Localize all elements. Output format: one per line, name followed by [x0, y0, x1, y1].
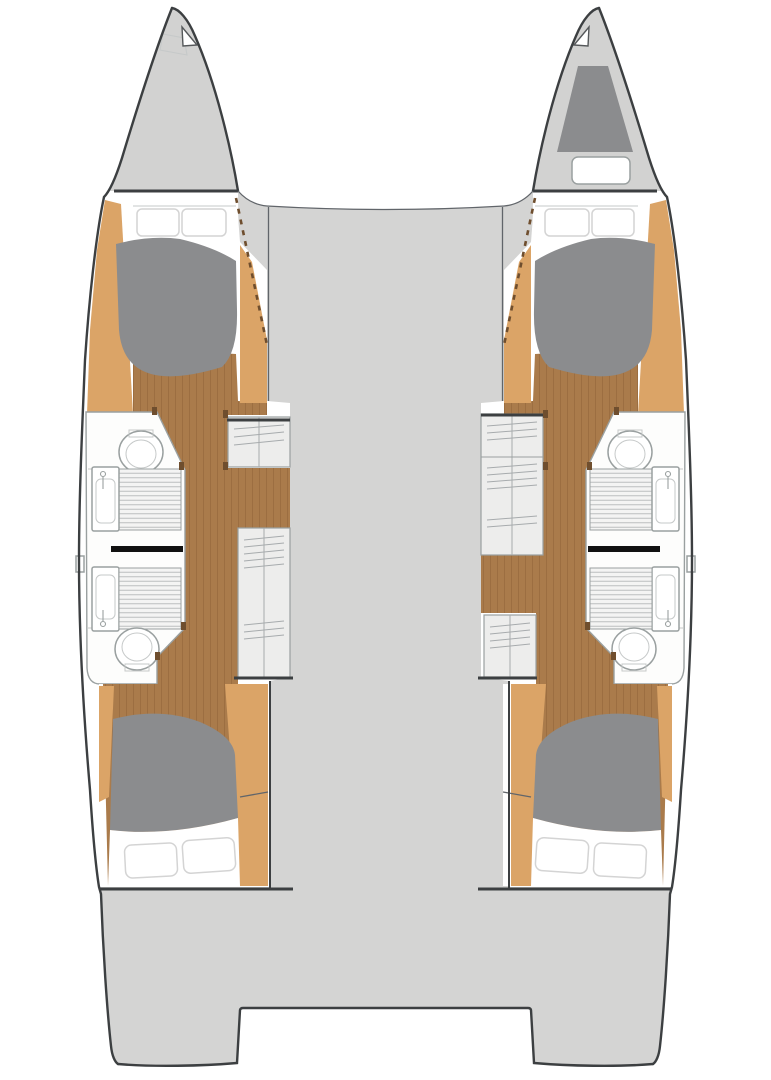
door-jamb — [179, 462, 184, 470]
starboard-bathroom-sliding-door — [588, 546, 660, 552]
port-forward-berth — [116, 238, 237, 377]
pillow — [535, 837, 589, 874]
door-jamb — [543, 410, 548, 418]
starboard-hull — [478, 192, 695, 889]
door-jamb — [223, 462, 228, 470]
pillow — [182, 837, 236, 874]
door-jamb — [152, 407, 157, 415]
door-jamb — [543, 462, 548, 470]
shower-grate — [590, 469, 652, 530]
starboard-bow-deck-hatch — [572, 157, 630, 184]
pillow — [182, 209, 226, 236]
starboard-forward-inner-trim — [504, 245, 531, 403]
door-jamb — [181, 622, 186, 630]
starboard-companionway-steps — [478, 414, 544, 678]
starboard-aft-cabin — [503, 684, 672, 886]
pillow — [545, 209, 589, 236]
pillow — [592, 209, 634, 236]
port-forward-inner-trim — [240, 245, 267, 403]
door-jamb — [611, 652, 616, 660]
floor-plan-page — [0, 0, 771, 1080]
door-jamb — [155, 652, 160, 660]
door-jamb — [585, 622, 590, 630]
door-jamb — [587, 462, 592, 470]
port-aft-cabin — [99, 684, 268, 886]
shower-grate — [119, 568, 181, 629]
port-bathroom-sliding-door — [111, 546, 183, 552]
door-jamb — [223, 410, 228, 418]
starboard-forward-berth — [534, 238, 655, 377]
pillow — [593, 843, 647, 879]
door-jamb — [614, 407, 619, 415]
pillow — [124, 843, 178, 879]
shower-grate — [590, 568, 652, 629]
port-hull — [76, 192, 293, 889]
pillow — [137, 209, 179, 236]
catamaran-floor-plan — [0, 0, 771, 1080]
shower-grate — [119, 469, 181, 530]
